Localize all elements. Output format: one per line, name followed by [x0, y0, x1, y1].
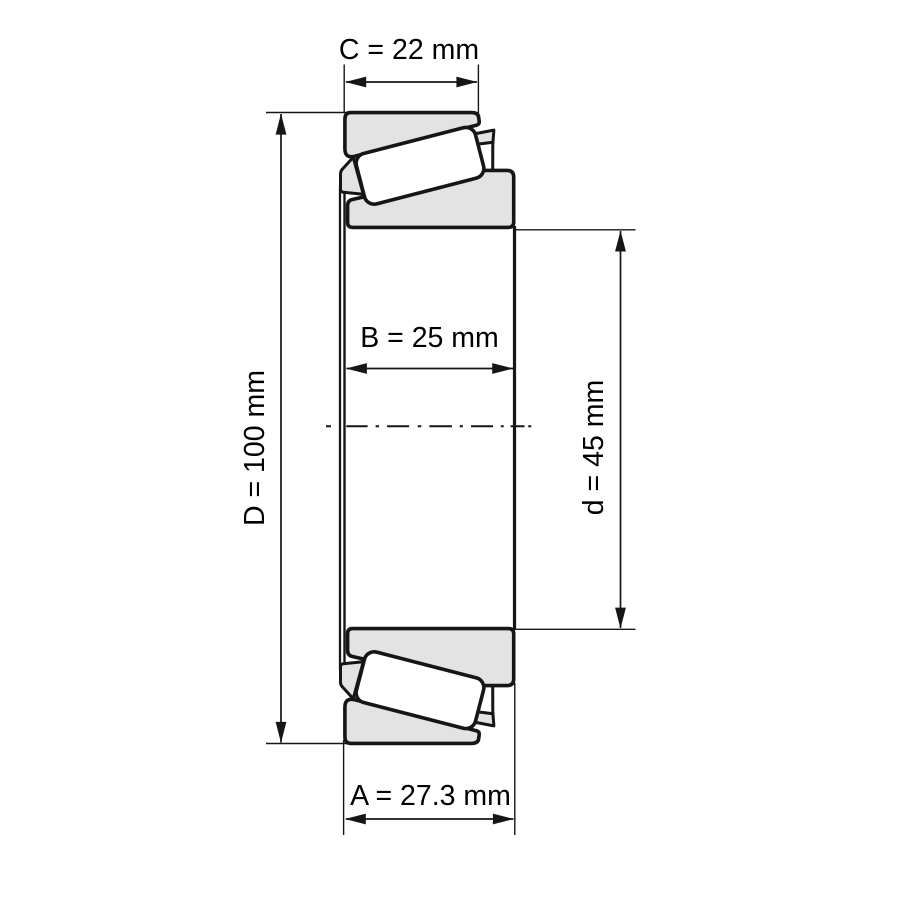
svg-text:D = 100 mm: D = 100 mm [239, 370, 271, 526]
svg-text:B = 25 mm: B = 25 mm [360, 322, 499, 354]
svg-text:C = 22 mm: C = 22 mm [339, 34, 479, 66]
svg-text:d = 45 mm: d = 45 mm [578, 380, 610, 515]
svg-text:A = 27.3 mm: A = 27.3 mm [350, 780, 511, 812]
